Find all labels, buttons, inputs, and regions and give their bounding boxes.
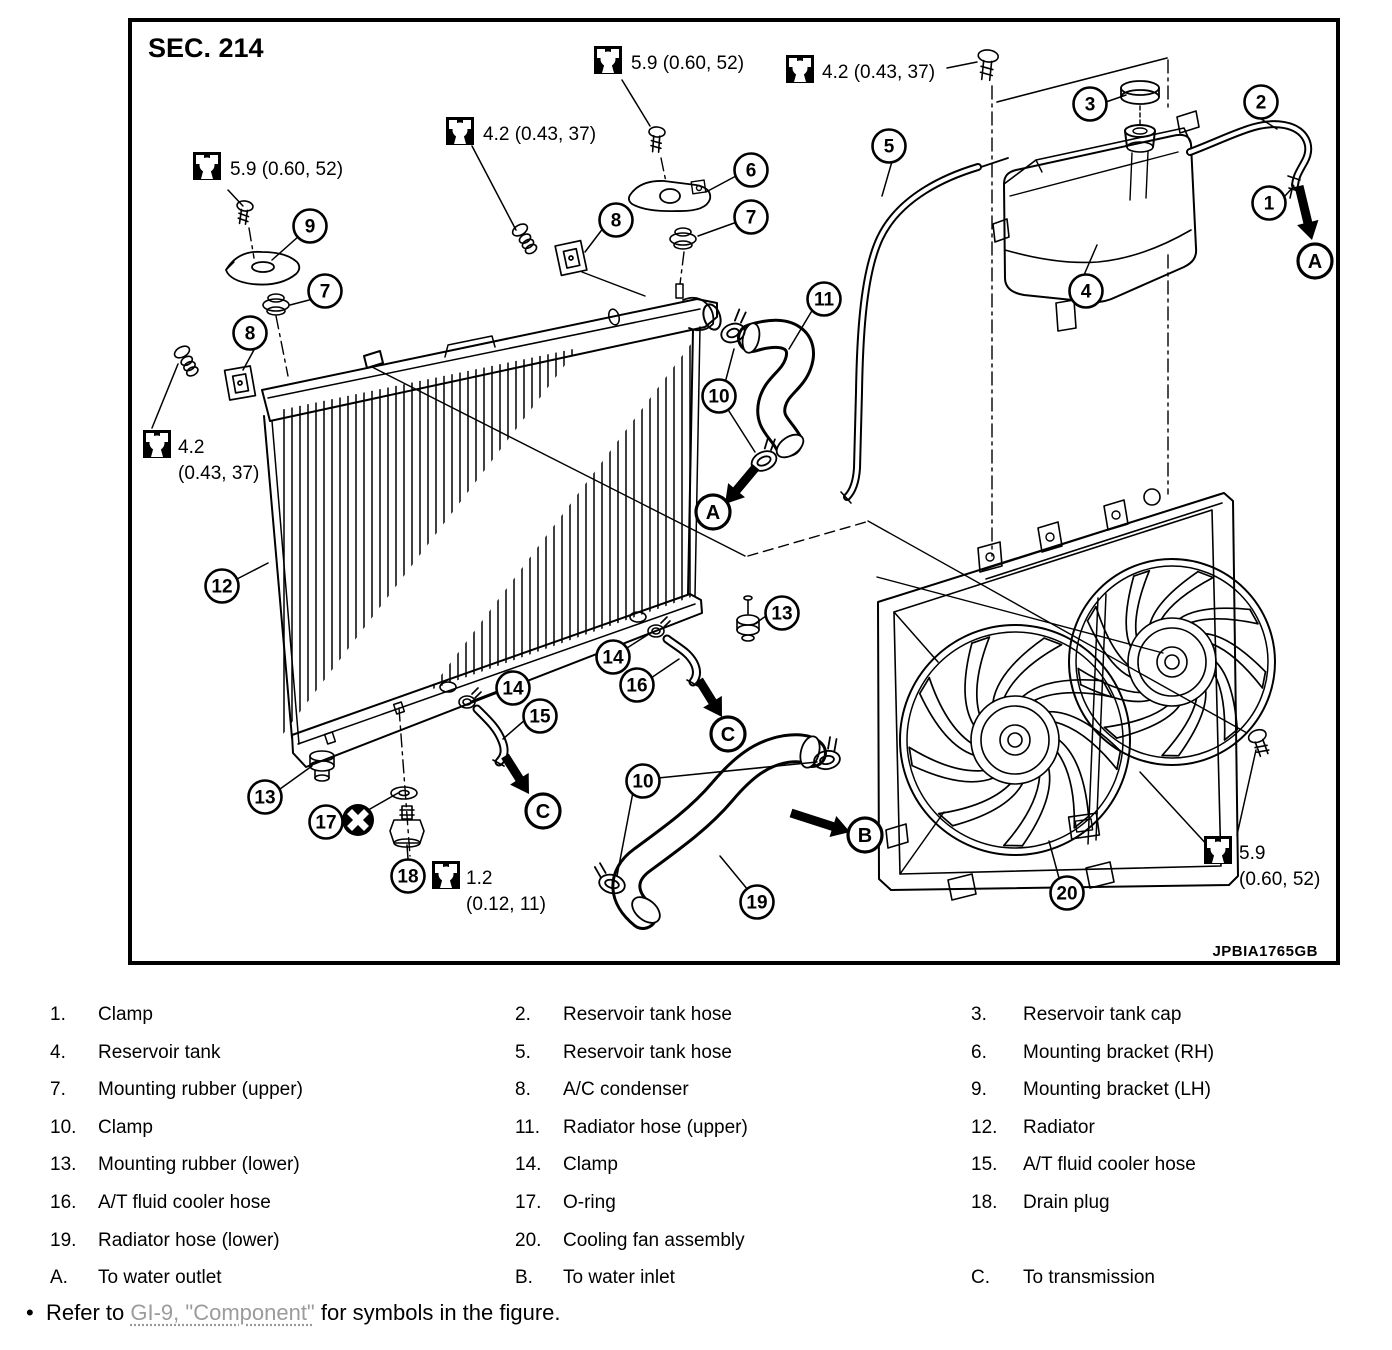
callout-number: 18 (397, 867, 418, 888)
torque-label: 1.2(0.12, 11) (432, 861, 546, 915)
reservoir-tank-cap (1121, 81, 1159, 124)
callout-20: 20 (1051, 877, 1084, 910)
flow-letter-C: C (526, 794, 560, 828)
legend-item-label: A/T fluid cooler hose (98, 1184, 515, 1222)
note-bullet: • (26, 1300, 46, 1326)
callout-number: 8 (611, 211, 622, 232)
flow-arrow (790, 809, 850, 837)
callout-13: 13 (766, 597, 799, 630)
torque-label: 4.2 (0.43, 37) (446, 117, 596, 145)
parts-legend: 1.Clamp2.Reservoir tank hose3.Reservoir … (50, 996, 1370, 1297)
callout-2: 2 (1245, 86, 1278, 119)
manual-page: SEC. 214 (0, 0, 1392, 1350)
flow-letter-C: C (711, 717, 745, 751)
callout-number: 5 (884, 137, 895, 158)
mounting-rubber-lower-left (310, 751, 334, 781)
callout-number: 7 (320, 282, 331, 303)
callout-number: 14 (602, 648, 624, 669)
callout-1: 1 (1253, 187, 1286, 220)
legend-item-label (1023, 1222, 1370, 1260)
legend-item-label: Clamp (98, 996, 515, 1034)
legend-item-number: 16. (50, 1184, 98, 1222)
legend-item-number: C. (971, 1259, 1023, 1297)
callout-13: 13 (249, 781, 282, 814)
callout-8: 8 (600, 204, 633, 237)
mounting-rubber-upper-left (263, 294, 289, 315)
legend-item-label: Reservoir tank hose (563, 996, 971, 1034)
callout-9: 9 (294, 210, 327, 243)
legend-item-number (971, 1222, 1023, 1260)
legend-item-label: A/T fluid cooler hose (1023, 1146, 1370, 1184)
legend-item-number: 1. (50, 996, 98, 1034)
callout-14: 14 (497, 672, 530, 705)
callout-7: 7 (309, 275, 342, 308)
mounting-rubber-upper-mid (670, 228, 696, 249)
callout-number: 7 (746, 208, 757, 229)
screw-lh (235, 200, 254, 225)
screw-rh (648, 126, 666, 152)
torque-value: (0.60, 52) (1239, 869, 1320, 890)
flow-letter-A: A (696, 495, 730, 529)
torque-value: 4.2 (0.43, 37) (483, 124, 596, 145)
callout-number: 10 (632, 772, 653, 793)
radiator (262, 284, 724, 767)
flow-letter-A: A (1298, 244, 1332, 278)
callout-number: 13 (254, 788, 275, 809)
flow-arrow (725, 464, 759, 504)
legend-item-number: 7. (50, 1071, 98, 1109)
legend-item-label: Reservoir tank (98, 1034, 515, 1072)
callout-number: 6 (746, 161, 757, 182)
callout-19: 19 (741, 886, 774, 919)
at-fluid-cooler-hose-15 (477, 709, 504, 766)
reference-note: •Refer to GI-9, "Component" for symbols … (26, 1300, 561, 1326)
callout-number: 10 (708, 387, 729, 408)
callout-number: 13 (771, 604, 792, 625)
callout-5: 5 (873, 130, 906, 163)
callout-12: 12 (206, 570, 239, 603)
legend-item-label: Cooling fan assembly (563, 1222, 971, 1260)
legend-item-label: To water outlet (98, 1259, 515, 1297)
legend-item-label: Reservoir tank cap (1023, 996, 1370, 1034)
callout-7: 7 (735, 201, 768, 234)
legend-item-number: 2. (515, 996, 563, 1034)
callout-15: 15 (524, 700, 557, 733)
legend-item-label: Mounting rubber (upper) (98, 1071, 515, 1109)
torque-label: 5.9 (0.60, 52) (193, 152, 343, 180)
legend-item-number: 15. (971, 1146, 1023, 1184)
callout-18: 18 (392, 860, 425, 893)
callout-6: 6 (735, 154, 768, 187)
callout-number: 17 (315, 813, 336, 834)
callout-number: 16 (626, 676, 647, 697)
legend-item-label: Mounting bracket (LH) (1023, 1071, 1370, 1109)
legend-item-label: Radiator (1023, 1109, 1370, 1147)
legend-item-number: 18. (971, 1184, 1023, 1222)
legend-item-label: A/C condenser (563, 1071, 971, 1109)
callout-number: 9 (305, 217, 316, 238)
legend-item-number: 8. (515, 1071, 563, 1109)
callout-14: 14 (597, 641, 630, 674)
legend-item-number: 17. (515, 1184, 563, 1222)
torque-value: 1.2 (466, 868, 492, 889)
reservoir-tank-hose-2 (1190, 124, 1308, 198)
legend-item-number: 13. (50, 1146, 98, 1184)
legend-item-label: O-ring (563, 1184, 971, 1222)
legend-item-number: 11. (515, 1109, 563, 1147)
torque-value: (0.12, 11) (466, 894, 546, 915)
torque-label: 5.9(0.60, 52) (1204, 836, 1320, 890)
flow-letter-text: B (858, 825, 872, 847)
torque-label: 4.2 (0.43, 37) (786, 55, 935, 83)
callout-number: 15 (529, 707, 551, 728)
figure-code: JPBIA1765GB (1212, 943, 1318, 960)
callout-number: 14 (502, 679, 524, 700)
torque-value: 5.9 (0.60, 52) (230, 159, 343, 180)
callout-number: 11 (814, 290, 835, 311)
torque-value: (0.43, 37) (178, 463, 259, 484)
reservoir-bolt (976, 49, 999, 81)
legend-item-number: 19. (50, 1222, 98, 1260)
legend-item-number: 20. (515, 1222, 563, 1260)
torque-value: 5.9 (0.60, 52) (631, 53, 744, 74)
exploded-diagram: SEC. 214 (0, 0, 1392, 975)
condenser-clip-mid (555, 241, 587, 276)
legend-item-number: 4. (50, 1034, 98, 1072)
legend-item-label: Reservoir tank hose (563, 1034, 971, 1072)
callout-number: 2 (1256, 93, 1267, 114)
legend-item-label: Radiator hose (upper) (563, 1109, 971, 1147)
dashed-leader (748, 522, 866, 556)
fan-bolt (1247, 727, 1273, 758)
legend-item-label: To water inlet (563, 1259, 971, 1297)
legend-item-label: To transmission (1023, 1259, 1370, 1297)
callout-10: 10 (703, 380, 736, 413)
legend-item-number: 6. (971, 1034, 1023, 1072)
mounting-rubber-lower-right (737, 596, 759, 641)
torque-value: 5.9 (1239, 843, 1265, 864)
legend-item-label: Radiator hose (lower) (98, 1222, 515, 1260)
torque-label: 4.2(0.43, 37) (143, 430, 259, 484)
legend-item-number: A. (50, 1259, 98, 1297)
flow-letter-text: A (706, 502, 720, 524)
flow-arrow (695, 678, 722, 717)
clip-screw-left (173, 344, 202, 379)
mounting-bracket-lh (226, 252, 299, 285)
note-suffix: for symbols in the figure. (315, 1300, 561, 1325)
flow-letter-text: C (721, 724, 735, 746)
callout-8: 8 (234, 317, 267, 350)
section-label: SEC. 214 (148, 33, 264, 63)
mounting-bracket-rh (629, 180, 710, 211)
callout-number: 20 (1056, 884, 1077, 905)
do-not-reuse-icon (342, 804, 374, 836)
legend-item-number: 12. (971, 1109, 1023, 1147)
condenser-clip-left (225, 366, 256, 400)
callout-17: 17 (310, 806, 343, 839)
torque-label: 5.9 (0.60, 52) (594, 46, 744, 74)
callout-4: 4 (1070, 275, 1103, 308)
callout-number: 8 (245, 324, 256, 345)
note-prefix: Refer to (46, 1300, 130, 1325)
flow-letter-text: A (1308, 251, 1322, 273)
legend-item-number: 14. (515, 1146, 563, 1184)
callout-number: 12 (211, 577, 232, 598)
callout-number: 19 (746, 893, 767, 914)
callout-number: 3 (1085, 95, 1096, 116)
callout-number: 4 (1081, 282, 1092, 303)
o-ring (391, 787, 417, 799)
callout-number: 1 (1264, 194, 1275, 215)
radiator-hose-lower (626, 734, 822, 928)
legend-item-number: 5. (515, 1034, 563, 1072)
legend-item-label: Drain plug (1023, 1184, 1370, 1222)
at-fluid-cooler-hose-16 (667, 639, 698, 686)
torque-value: 4.2 (178, 437, 204, 458)
legend-item-number: 10. (50, 1109, 98, 1147)
callout-16: 16 (621, 669, 654, 702)
legend-item-label: Clamp (98, 1109, 515, 1147)
callout-10: 10 (627, 765, 660, 798)
legend-item-number: 3. (971, 996, 1023, 1034)
legend-item-label: Mounting rubber (lower) (98, 1146, 515, 1184)
flow-arrow (1295, 185, 1319, 240)
legend-item-label: Mounting bracket (RH) (1023, 1034, 1370, 1072)
flow-arrow (501, 754, 529, 794)
legend-item-number: B. (515, 1259, 563, 1297)
callout-3: 3 (1074, 88, 1107, 121)
legend-item-label: Clamp (563, 1146, 971, 1184)
flow-letter-B: B (848, 818, 882, 852)
flow-letter-text: C (536, 801, 550, 823)
reservoir-tank-hose-5 (841, 158, 1008, 503)
legend-item-number: 9. (971, 1071, 1023, 1109)
torque-value: 4.2 (0.43, 37) (822, 62, 935, 83)
note-link[interactable]: GI-9, "Component" (130, 1300, 314, 1325)
callout-11: 11 (808, 283, 841, 316)
